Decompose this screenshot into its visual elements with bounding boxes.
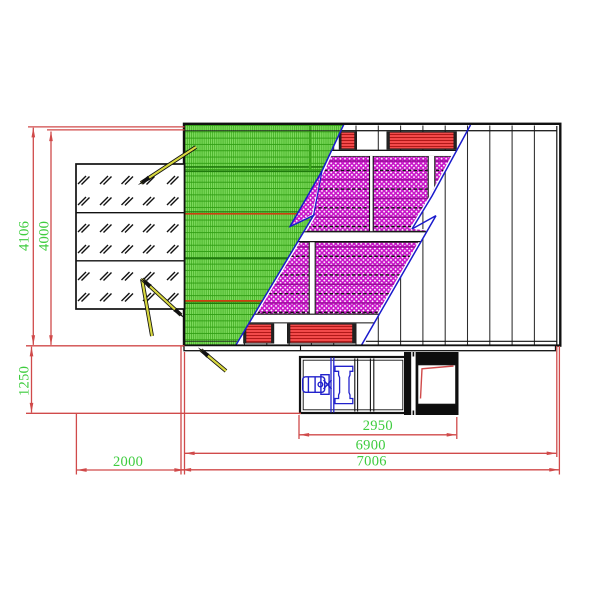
svg-text:2950: 2950 <box>363 418 393 434</box>
svg-text:6900: 6900 <box>356 437 386 453</box>
svg-text:7006: 7006 <box>357 453 387 469</box>
svg-text:1250: 1250 <box>17 366 33 396</box>
svg-text:4000: 4000 <box>37 221 53 251</box>
svg-text:2000: 2000 <box>113 454 143 470</box>
svg-text:4106: 4106 <box>17 221 33 251</box>
